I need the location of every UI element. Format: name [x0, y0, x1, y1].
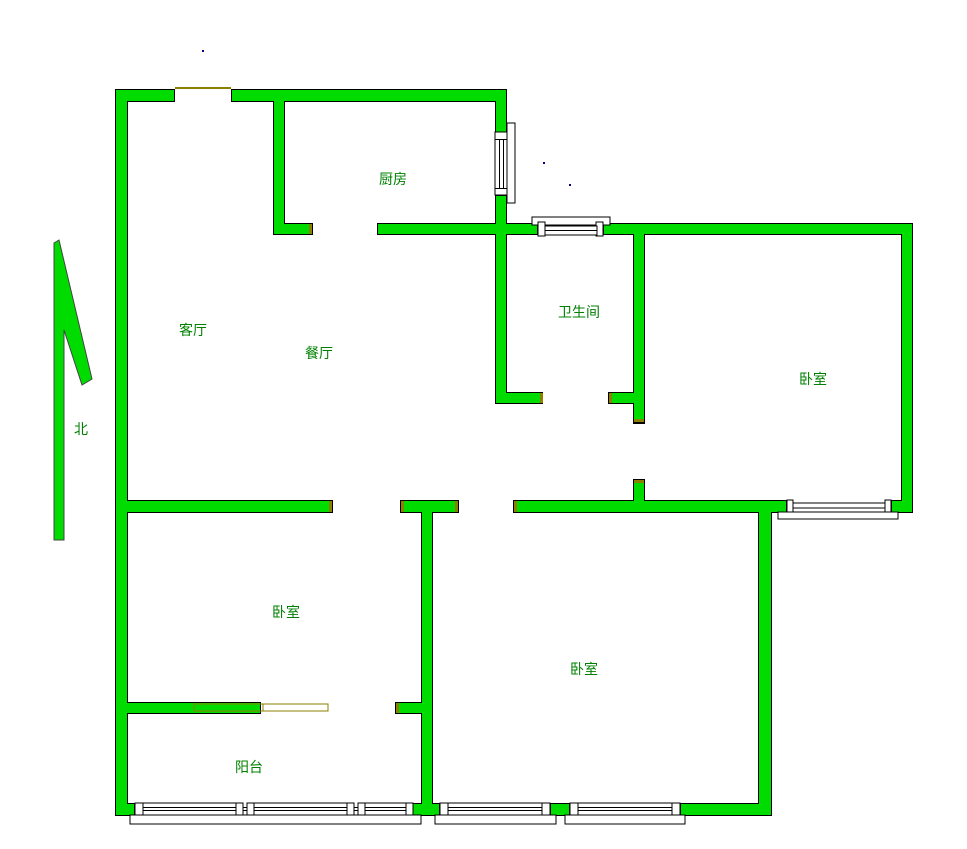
bathroom-window — [532, 217, 610, 236]
north-arrow — [54, 240, 92, 540]
entry-door-line — [175, 87, 231, 89]
room-label-bedroom-bottom-right: 卧室 — [570, 663, 598, 677]
room-label-dining-room: 餐厅 — [305, 347, 333, 361]
bedroom-top-right-window — [778, 500, 898, 519]
north-label: 北 — [74, 423, 88, 437]
room-label-bathroom: 卫生间 — [558, 306, 600, 320]
kitchen-side-window — [495, 123, 515, 203]
floor-plan-drawing — [0, 0, 967, 849]
room-label-bedroom-bottom-left: 卧室 — [272, 606, 300, 620]
floor-plan: 厨房 客厅 餐厅 卫生间 卧室 卧室 卧室 阳台 北 — [0, 0, 967, 849]
room-label-living-room: 客厅 — [179, 324, 207, 338]
room-label-balcony: 阳台 — [235, 761, 263, 775]
stray-dot — [202, 50, 204, 52]
stray-dot — [569, 184, 571, 186]
door-jamb-caps — [309, 224, 644, 713]
room-label-kitchen: 厨房 — [379, 173, 407, 187]
bottom-window-sills — [130, 815, 685, 824]
balcony-window — [135, 803, 413, 815]
room-label-bedroom-top-right: 卧室 — [799, 373, 827, 387]
stray-dot — [543, 162, 545, 164]
